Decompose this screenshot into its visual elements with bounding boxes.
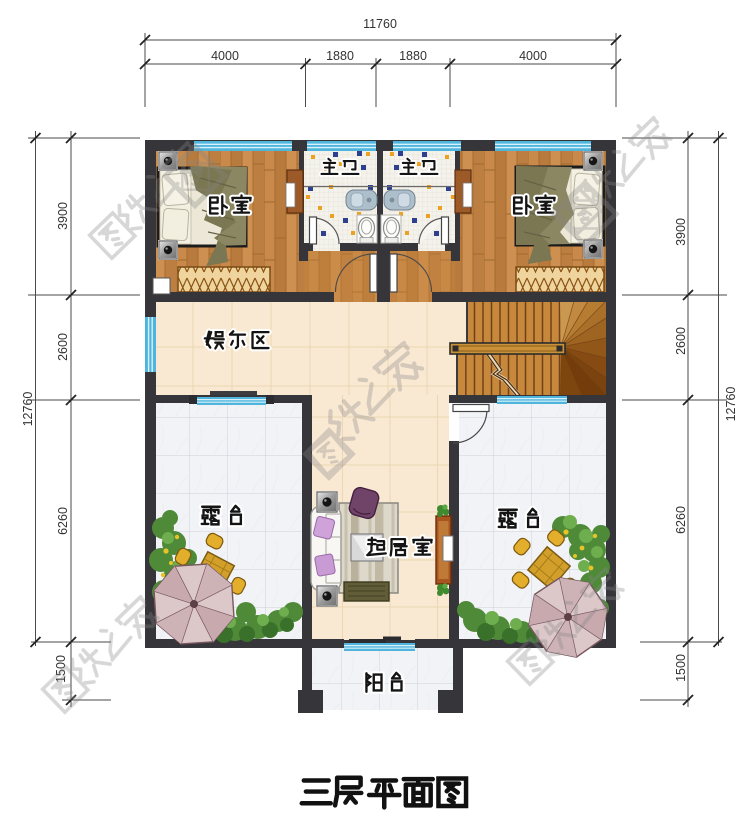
svg-text:6260: 6260	[56, 507, 70, 535]
svg-text:3900: 3900	[674, 218, 688, 246]
svg-text:12760: 12760	[724, 387, 738, 422]
svg-text:1500: 1500	[674, 654, 688, 682]
svg-text:2600: 2600	[674, 327, 688, 355]
svg-text:2600: 2600	[56, 333, 70, 361]
svg-text:3900: 3900	[56, 202, 70, 230]
svg-text:1880: 1880	[326, 49, 354, 63]
svg-text:12760: 12760	[21, 392, 35, 427]
svg-text:4000: 4000	[211, 49, 239, 63]
svg-text:11760: 11760	[363, 17, 397, 31]
svg-text:1880: 1880	[399, 49, 427, 63]
svg-text:6260: 6260	[674, 506, 688, 534]
svg-text:4000: 4000	[519, 49, 547, 63]
